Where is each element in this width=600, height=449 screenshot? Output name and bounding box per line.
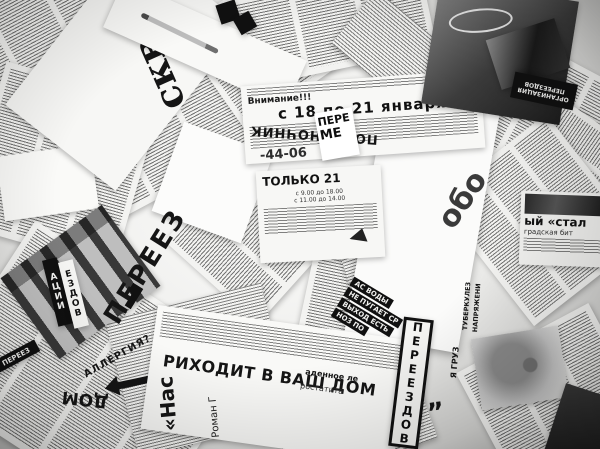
- nas-vertical-text: «Нас: [155, 375, 180, 432]
- stal-subheadline: градская бит: [524, 228, 600, 239]
- stamp-oval-icon: [448, 6, 514, 35]
- dom-text: ДОМ: [61, 388, 109, 410]
- only21-scrap: ТОЛЬКО 21 с 9.00 до 18.00 с 11.00 до 14.…: [256, 165, 386, 263]
- animal-photo-clipping: [471, 326, 569, 411]
- stalingrad-article: ый «стал градская бит: [519, 191, 600, 268]
- quote-marks-text: „: [424, 385, 445, 413]
- article-photo-bar: [525, 194, 600, 217]
- movers-tile: ПЕРЕ МЕ: [314, 107, 360, 161]
- pencil-icon: [140, 12, 219, 54]
- phone-fragment-text: -44-06: [260, 146, 308, 162]
- tuberkulez-vertical-text: ТУБЕРКУЛЕЗ: [462, 282, 472, 331]
- newspaper-collage-photo: сква Внимание!!! с 18 по 21 января ПОЗВО…: [0, 0, 600, 449]
- napryazheni-vertical-text: НАПРЯЖЕНИ: [472, 283, 482, 332]
- fine-print-lines: [523, 238, 600, 255]
